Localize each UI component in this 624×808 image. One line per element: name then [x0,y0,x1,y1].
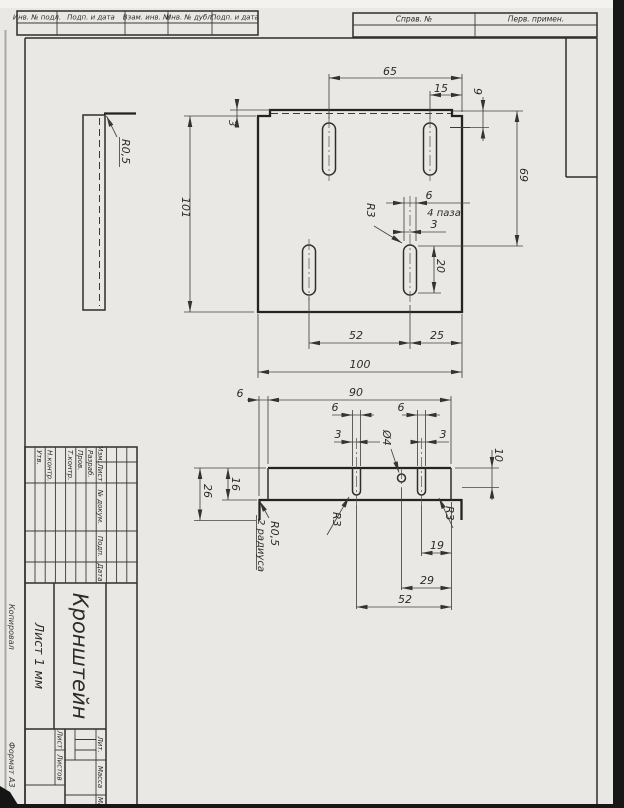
dim-front-slot-length: 20 [434,259,447,273]
paper-top-edge [0,0,624,8]
margin-format: Формат А3 [7,742,16,788]
dim-front-step: 3 [226,120,237,126]
scanned-drawing-sheet: Инв. № подл. Подп. и дата Взам. инв. № И… [0,0,624,808]
tb-row-razrab: Разраб. [86,450,94,478]
dim-front-width-total: 100 [350,358,371,371]
tb-row-nkontr: Н.контр. [45,450,53,481]
tb-row-utv: Утв. [35,450,43,465]
dim-19: 19 [430,539,444,552]
strip-inv-podl: Инв. № подл. [13,14,61,22]
dim-bottom-offset-left: 6 [237,387,244,400]
tb-col-izm: Изм. [96,446,104,462]
tb-col-dokum: № докум. [96,489,104,525]
dim-front-slot-edge: 25 [430,329,444,342]
dim-slot-a-half: 3 [335,428,342,441]
tb-row-tkontr: Т.контр. [66,450,74,480]
tb-lit: Лит. [96,735,104,752]
tb-col-list: Лист [96,463,104,483]
tb-col-podp: Подп. [96,536,104,557]
paper [0,0,624,808]
strip-podp-data-2: Подп. и дата [211,14,259,22]
dim-52: 52 [398,593,412,606]
dim-front-offset-right: 15 [434,82,448,95]
dim-front-slot-half: 3 [431,218,438,231]
tb-massa: Масса [96,766,104,788]
label-slot-b-radius: R3 [443,506,456,521]
dim-height-outer: 26 [201,484,214,498]
dim-slot-b-half: 3 [440,428,447,441]
strip-sprav-no: Справ. № [396,15,433,24]
dim-front-depth-right: 9 [471,88,484,95]
dim-bottom-flange-width: 90 [349,386,363,399]
side-bend-radius-label: R0,5 [119,139,132,164]
dim-29: 29 [420,574,434,587]
dim-slot-b-width: 6 [398,401,405,414]
strip-perv-primen: Перв. примен. [508,15,564,24]
part-material: Лист 1 мм [32,622,47,689]
dim-slot-a-width: 6 [332,401,339,414]
dim-hole-diameter: Ø4 [380,429,393,446]
strip-inv-dubl: Инв. № дубл. [166,14,214,22]
dim-height-inner: 16 [229,477,242,491]
dim-flange-height: 10 [492,448,505,462]
tb-list: Лист [56,730,64,750]
strip-podp-data-1: Подп. и дата [67,14,115,22]
tb-listov: Листов [56,753,64,780]
label-front-slot-radius: R3 [364,203,377,218]
dim-front-slot-spacing: 52 [349,329,363,342]
strip-vzam-inv: Взам. инв. № [123,14,171,22]
label-bend-radius: R0,5 [268,521,281,546]
dim-front-height: 101 [179,197,192,218]
label-radius-note: 2 радиуса [255,519,266,572]
tb-row-prov: Пров. [76,450,84,470]
label-slot-a-radius: R3 [330,512,343,527]
dim-front-slot-width: 6 [426,189,433,202]
dim-front-height-right: 69 [517,168,530,182]
part-name: Кронштейн [68,593,92,720]
dim-front-width-top: 65 [383,65,397,78]
margin-kopiroval: Копировал [7,604,16,650]
tb-col-data: Дата [96,562,104,581]
